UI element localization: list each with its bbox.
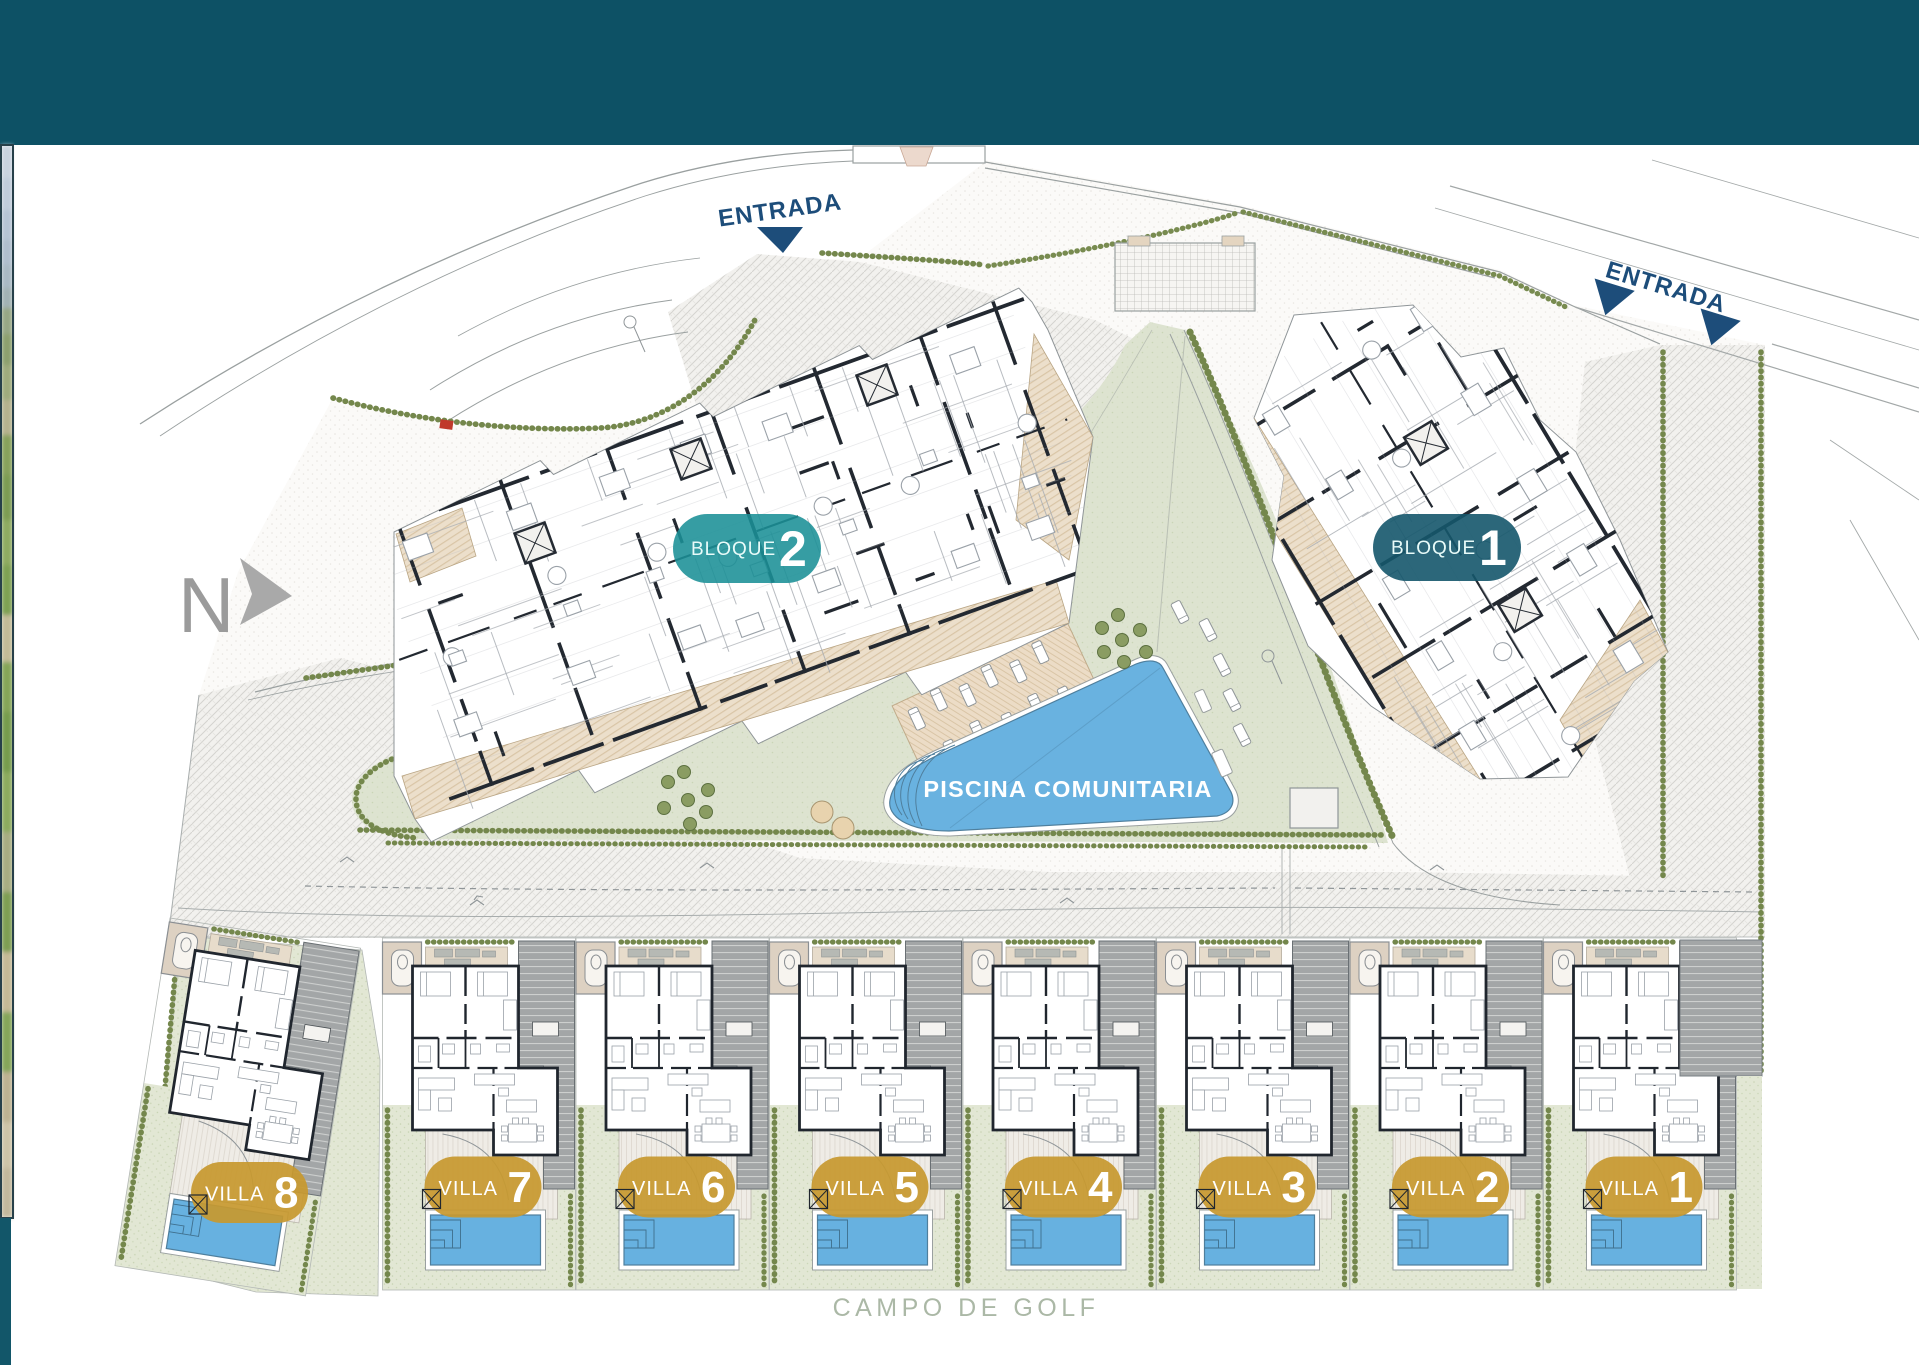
svg-text:7: 7 (508, 1163, 532, 1212)
svg-text:BLOQUE: BLOQUE (691, 539, 776, 560)
svg-text:VILLA: VILLA (205, 1184, 264, 1206)
svg-text:VILLA: VILLA (826, 1178, 885, 1200)
svg-text:VILLA: VILLA (439, 1178, 498, 1200)
svg-text:3: 3 (1282, 1163, 1306, 1212)
svg-text:8: 8 (274, 1169, 298, 1218)
svg-text:VILLA: VILLA (1406, 1178, 1465, 1200)
svg-text:BLOQUE: BLOQUE (1391, 538, 1476, 559)
svg-text:N: N (178, 561, 234, 649)
svg-text:1: 1 (1479, 520, 1507, 576)
svg-text:VILLA: VILLA (632, 1178, 691, 1200)
svg-text:6: 6 (701, 1163, 725, 1212)
svg-text:2: 2 (779, 521, 807, 577)
svg-text:1: 1 (1669, 1163, 1693, 1212)
svg-text:PISCINA COMUNITARIA: PISCINA COMUNITARIA (923, 776, 1212, 802)
svg-text:VILLA: VILLA (1213, 1178, 1272, 1200)
svg-text:5: 5 (895, 1163, 919, 1212)
svg-text:4: 4 (1088, 1163, 1113, 1212)
svg-text:VILLA: VILLA (1600, 1178, 1659, 1200)
svg-text:2: 2 (1475, 1163, 1499, 1212)
svg-text:VILLA: VILLA (1019, 1178, 1078, 1200)
svg-text:CAMPO DE GOLF: CAMPO DE GOLF (833, 1294, 1100, 1322)
